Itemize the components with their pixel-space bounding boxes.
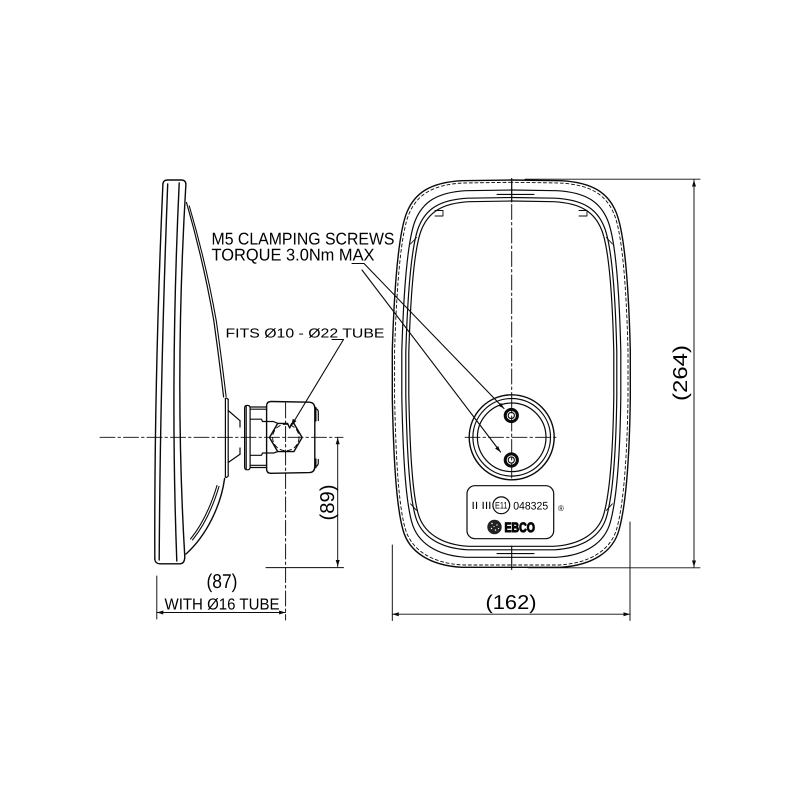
svg-text:FITS Ø10 - Ø22 TUBE: FITS Ø10 - Ø22 TUBE (226, 326, 385, 341)
svg-text:(87): (87) (207, 571, 238, 593)
svg-text:EBCO: EBCO (505, 520, 536, 535)
svg-text:(89): (89) (317, 485, 339, 521)
svg-text:(264): (264) (670, 345, 692, 401)
svg-text:(162): (162) (486, 592, 537, 614)
svg-text:II III: II III (472, 500, 492, 512)
svg-text:TORQUE 3.0Nm MAX: TORQUE 3.0Nm MAX (212, 246, 375, 265)
svg-text:WITH Ø16 TUBE: WITH Ø16 TUBE (165, 597, 280, 614)
svg-text:®: ® (558, 504, 564, 513)
svg-text:E11: E11 (495, 501, 508, 512)
svg-text:048325: 048325 (513, 501, 548, 513)
